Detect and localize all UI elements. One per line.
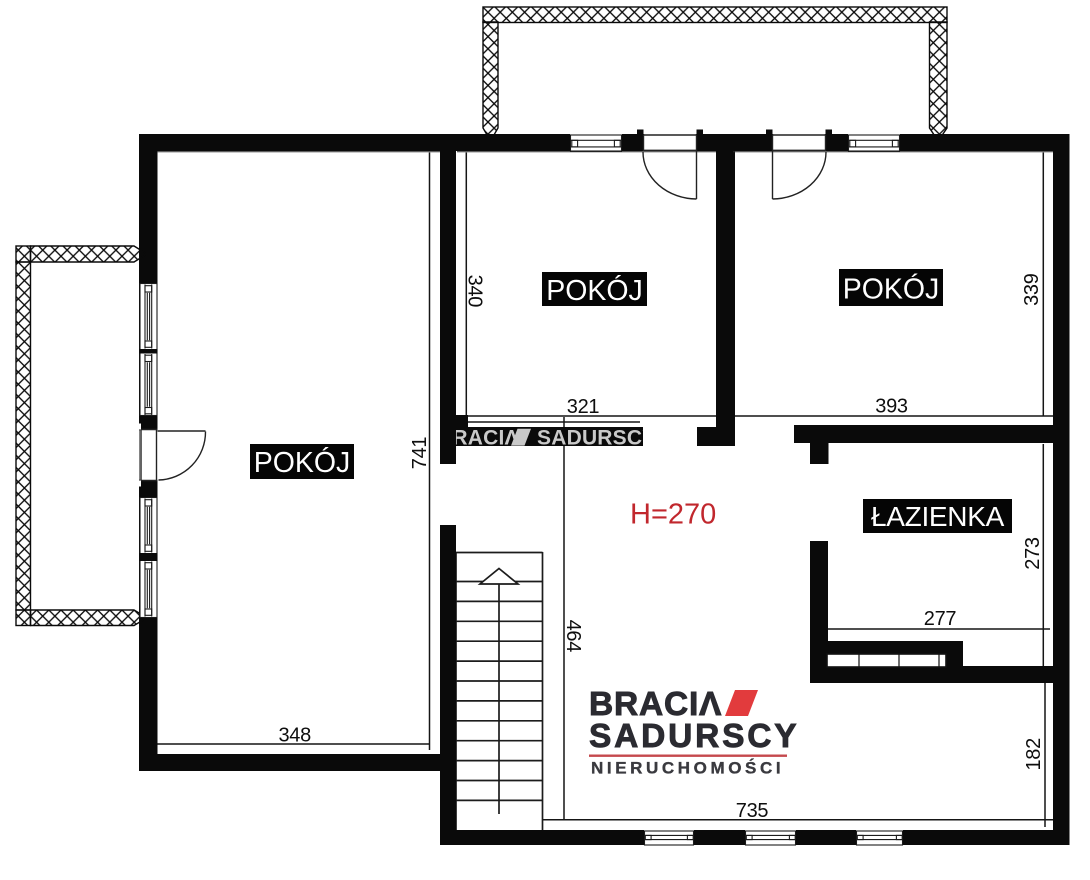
- svg-text:182: 182: [1023, 738, 1045, 771]
- svg-text:POKÓJ: POKÓJ: [546, 275, 643, 307]
- svg-text:348: 348: [278, 725, 311, 747]
- svg-text:735: 735: [736, 800, 769, 822]
- svg-text:339: 339: [1021, 273, 1043, 306]
- svg-text:SADURSCY: SADURSCY: [589, 718, 799, 755]
- svg-text:ŁAZIENKA: ŁAZIENKA: [871, 501, 1005, 532]
- svg-text:H=270: H=270: [630, 499, 716, 531]
- svg-text:POKÓJ: POKÓJ: [254, 447, 351, 479]
- svg-text:741: 741: [409, 437, 431, 470]
- svg-text:NIERUCHOMOŚCI: NIERUCHOMOŚCI: [591, 759, 784, 778]
- svg-text:POKÓJ: POKÓJ: [843, 274, 940, 306]
- svg-text:393: 393: [875, 396, 908, 418]
- svg-text:464: 464: [562, 620, 584, 653]
- svg-text:273: 273: [1022, 537, 1044, 570]
- svg-text:277: 277: [924, 608, 957, 630]
- svg-text:340: 340: [463, 275, 485, 308]
- svg-text:321: 321: [567, 396, 600, 418]
